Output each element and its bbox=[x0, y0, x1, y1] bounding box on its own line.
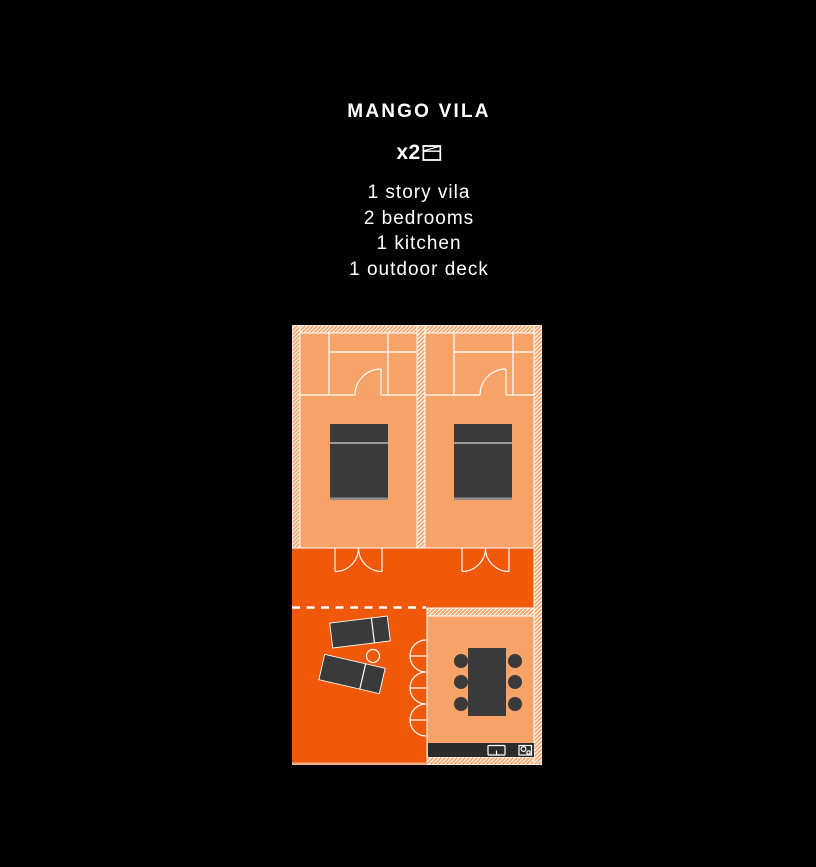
feature-kitchen: 1 kitchen bbox=[349, 231, 489, 257]
feature-list: 1 story vila 2 bedrooms 1 kitchen 1 outd… bbox=[349, 180, 489, 282]
villa-title: MANGO VILA bbox=[347, 101, 490, 123]
poster-canvas: { "title": "MANGO VILA", "quantity": { "… bbox=[0, 0, 816, 867]
floorplan-count-icon bbox=[423, 145, 442, 161]
quantity-row: x2 bbox=[396, 141, 441, 165]
feature-deck: 1 outdoor deck bbox=[349, 257, 489, 283]
wall-kitchen-top bbox=[427, 608, 534, 616]
wall-left bbox=[292, 325, 300, 548]
feature-bedrooms: 2 bedrooms bbox=[349, 206, 489, 232]
chair-icon bbox=[454, 654, 468, 668]
dining-table-icon bbox=[468, 648, 506, 716]
wall-kitchen-bottom bbox=[427, 757, 534, 765]
bed-left-icon bbox=[330, 424, 388, 500]
chair-icon bbox=[508, 654, 522, 668]
wall-middle bbox=[417, 325, 425, 548]
deck-bottom-edge bbox=[292, 763, 426, 766]
kitchen-counter bbox=[428, 743, 534, 757]
bed-right-icon bbox=[454, 424, 512, 500]
feature-stories: 1 story vila bbox=[349, 180, 489, 206]
chair-icon bbox=[454, 697, 468, 711]
chair-icon bbox=[508, 697, 522, 711]
quantity-label: x2 bbox=[396, 141, 420, 165]
chair-icon bbox=[454, 675, 468, 689]
wall-right bbox=[534, 325, 542, 765]
dining-set bbox=[454, 648, 522, 716]
chair-icon bbox=[508, 675, 522, 689]
floor-plan bbox=[292, 325, 542, 765]
